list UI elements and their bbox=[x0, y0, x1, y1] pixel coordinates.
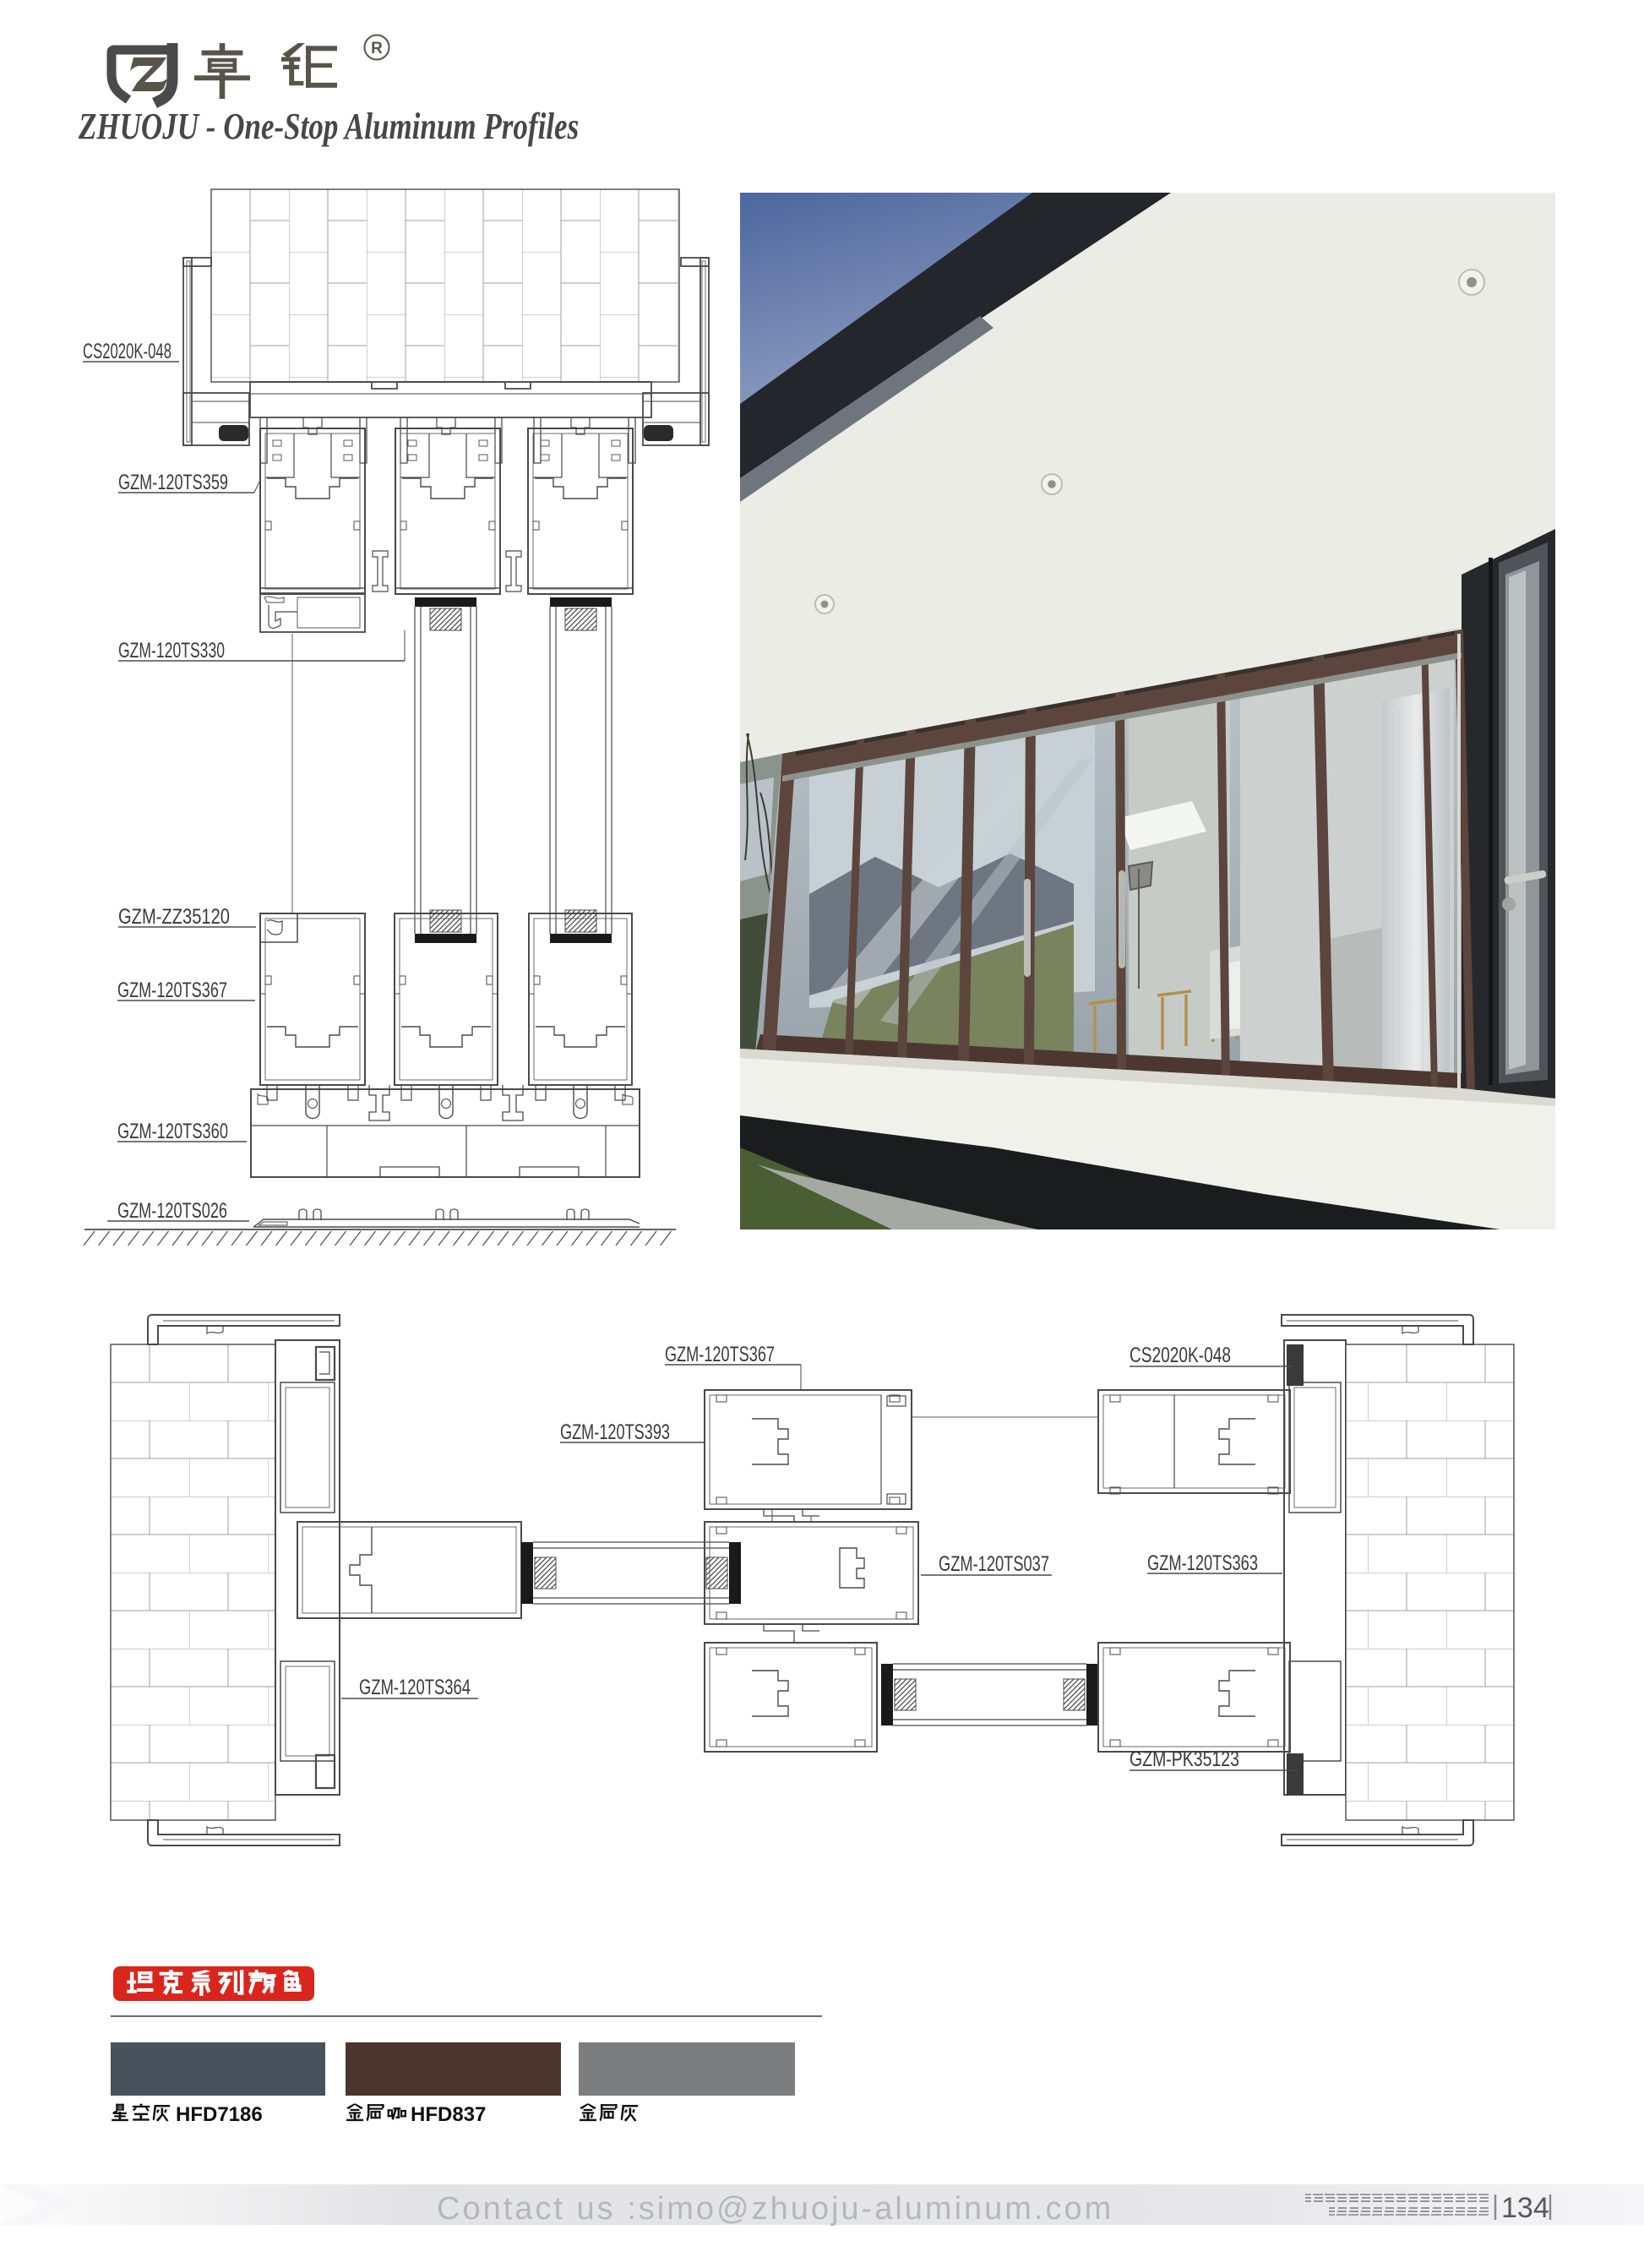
svg-text:HFD7186: HFD7186 bbox=[176, 2103, 263, 2126]
svg-text:GZM-120TS359: GZM-120TS359 bbox=[118, 471, 228, 494]
svg-text:GZM-120TS393: GZM-120TS393 bbox=[560, 1420, 670, 1444]
svg-text:CS2020K-048: CS2020K-048 bbox=[83, 340, 171, 363]
svg-text:Contact us :simo@zhuoju-alumin: Contact us :simo@zhuoju-aluminum.com bbox=[437, 2191, 1113, 2227]
svg-text:R: R bbox=[371, 40, 383, 57]
svg-text:GZM-PK35123: GZM-PK35123 bbox=[1130, 1747, 1239, 1771]
svg-text:HFD837: HFD837 bbox=[411, 2103, 486, 2126]
svg-text:GZM-120TS026: GZM-120TS026 bbox=[117, 1199, 227, 1223]
svg-text:134: 134 bbox=[1501, 2192, 1549, 2224]
svg-text:GZM-120TS360: GZM-120TS360 bbox=[117, 1120, 228, 1143]
svg-text:GZM-120TS363: GZM-120TS363 bbox=[1147, 1551, 1258, 1575]
svg-text:GZM-120TS367: GZM-120TS367 bbox=[117, 979, 227, 1002]
svg-text:GZM-120TS330: GZM-120TS330 bbox=[118, 639, 225, 662]
svg-text:CS2020K-048: CS2020K-048 bbox=[1130, 1344, 1231, 1367]
svg-text:GZM-120TS037: GZM-120TS037 bbox=[939, 1552, 1049, 1576]
svg-text:GZM-120TS367: GZM-120TS367 bbox=[665, 1343, 775, 1366]
svg-text:GZM-120TS364: GZM-120TS364 bbox=[359, 1676, 471, 1699]
svg-text:GZM-ZZ35120: GZM-ZZ35120 bbox=[118, 905, 230, 929]
